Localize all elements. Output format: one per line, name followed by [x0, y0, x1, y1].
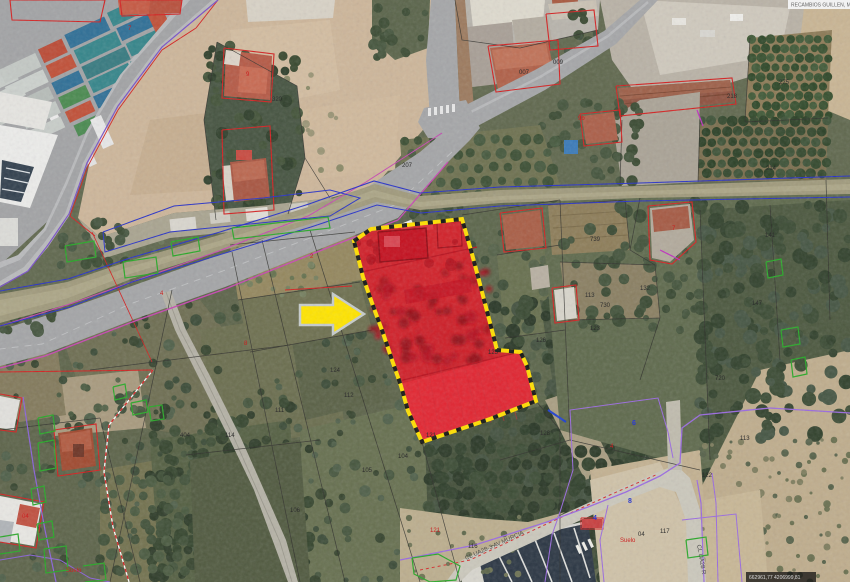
- svg-text:RECAMBIOS GUILLEN, MURCIA: RECAMBIOS GUILLEN, MURCIA: [791, 3, 850, 9]
- svg-text:662961,77 4206999,81: 662961,77 4206999,81: [749, 575, 801, 581]
